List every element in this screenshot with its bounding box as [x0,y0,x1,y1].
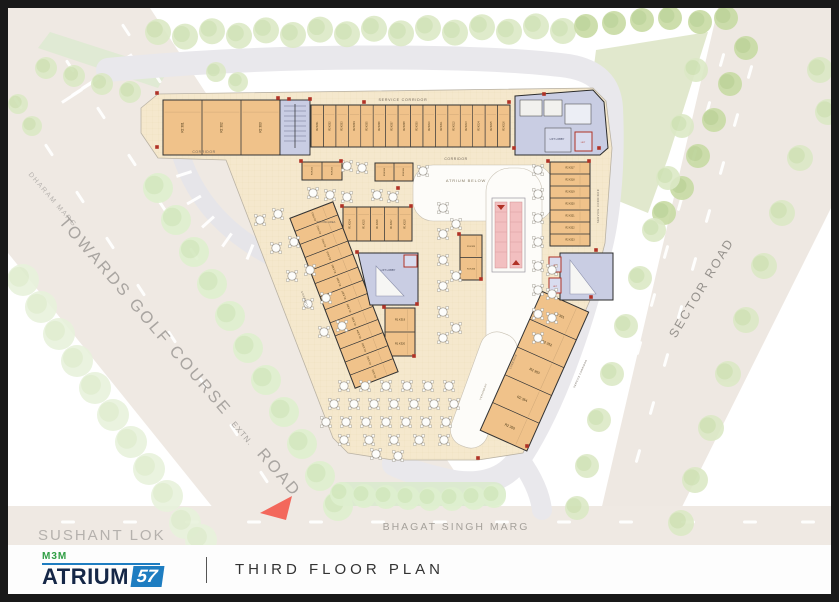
brand-logo: M3M ATRIUM 57 [42,552,174,588]
seating-table [357,163,368,174]
unit-label: R1 K322 [332,166,334,175]
tree [388,20,414,46]
tree [686,144,710,168]
seating-table [369,399,380,410]
unit-strip: R1 K321R1 K322 [302,162,342,180]
corner-marker [396,186,400,190]
seating-table [441,417,452,428]
seating-table [389,399,400,410]
tree [668,510,694,536]
tree [769,200,795,226]
tree [63,65,85,87]
tree [334,21,360,47]
tree [630,8,654,32]
corner-marker [589,295,593,299]
corner-marker [362,100,366,104]
seating-table [423,381,434,392]
tree [751,253,777,279]
tree [145,19,171,45]
road-dash [608,437,615,451]
unit-label: R1 K315 [363,219,365,229]
corner-marker [355,250,359,254]
site-plan-map: R2 301R2 302R2 303R2 K301R2 K302R2 K303R… [8,8,831,545]
tree [151,480,183,512]
tree [787,145,813,171]
seating-table [533,165,544,176]
tree [143,173,173,203]
seating-table [402,381,413,392]
unit-label: R2 K322 [566,228,576,230]
tree [670,114,694,138]
corner-marker [597,146,601,150]
seating-table [381,381,392,392]
label-lift-lobby-central: LIFT LOBBY [381,268,396,272]
unit-label: R1 K326 [467,268,476,270]
tree [43,318,75,350]
road-dash [61,521,75,524]
seating-table [429,399,440,410]
wc-room [520,100,542,116]
tree [718,72,742,96]
corner-marker [546,159,550,163]
tree [35,57,57,79]
seating-table [371,449,382,460]
unit-label: R2 K309 [416,121,418,131]
unit-label: R2 K303 [342,121,344,131]
seating-table [533,213,544,224]
seating-table [421,417,432,428]
corner-marker [507,100,511,104]
seating-table [438,307,449,318]
corner-marker [155,145,159,149]
unit-label: R1 K325 [467,246,476,248]
tree [656,166,680,190]
unit-label: R2 K321 [566,216,576,218]
tree [61,345,93,377]
unit-strip: R2 K301R2 K302R2 K303R2 K304R2 K305R2 K3… [311,105,510,147]
tree [374,485,398,509]
corner-marker [542,92,546,96]
tree [682,467,708,493]
corner-marker [287,97,291,101]
corner-marker [415,302,419,306]
corner-marker [409,204,413,208]
tree [600,362,624,386]
tree [280,22,306,48]
seating-table [438,255,449,266]
tree [251,365,281,395]
road-dash [123,521,137,524]
unit-label: R2 301 [180,122,184,133]
unit-label: R2 302 [219,122,223,133]
label-corridor-mid: CORRIDOR [444,157,467,161]
locality-label: SUSHANT LOK [38,527,166,544]
seating-table [372,190,383,201]
corner-marker [412,354,416,358]
tree [469,14,495,40]
seating-table [329,399,340,410]
brand-m3m: M3M [42,552,174,562]
seating-table [381,417,392,428]
label-waiting-area: WAITING AREA [317,220,336,224]
footer-divider [206,557,207,583]
unit-label: R2 K315 [491,121,493,131]
corner-marker [476,456,480,460]
label-service-corridor-top: SERVICE CORRIDOR [378,98,427,102]
unit-label: R1 K316 [377,219,379,229]
seating-table [533,237,544,248]
page-frame: R2 301R2 302R2 303R2 K301R2 K302R2 K303R… [0,0,839,602]
brand-name: ATRIUM [42,566,129,588]
unit-label: R2 K320 [566,204,576,206]
corner-marker [155,91,159,95]
tree [25,291,57,323]
label-atrium-below: ATRIUM BELOW [446,178,486,183]
unit-label: R2 K311 [441,121,443,130]
unit-label: R1 K321 [312,166,314,175]
unit-label: R2 K312 [454,121,456,131]
seating-table [438,281,449,292]
road-dash [619,521,633,524]
unit-strip: R1 K325R1 K326 [460,235,482,280]
unit-label: R2 K314 [479,121,481,131]
tree [715,361,741,387]
tree [614,314,638,338]
seating-table [547,289,558,300]
seating-table [255,215,266,226]
tree [197,269,227,299]
unit-label: R2 K302 [329,121,331,131]
seating-table [451,323,462,334]
corner-marker [525,444,529,448]
tree [396,486,420,510]
seating-table [533,333,544,344]
seating-table [533,285,544,296]
seating-table [409,399,420,410]
seating-table [438,229,449,240]
corner-marker [299,159,303,163]
seating-table [438,333,449,344]
seating-table [349,399,360,410]
unit-label: R2 K319 [566,192,576,194]
unit-label: R2 K307 [391,121,393,131]
tree [330,482,354,506]
tree [305,461,335,491]
tree [602,11,626,35]
unit-strip: R1 K323R1 K324 [375,163,413,181]
tree [226,23,252,49]
corner-marker [479,277,483,281]
seating-table [321,293,332,304]
tree [233,333,263,363]
seating-table [339,435,350,446]
seating-table [342,161,353,172]
seating-table [308,188,319,199]
seating-table [273,209,284,220]
tree [307,17,333,43]
seating-table [305,265,316,276]
label-corridor-left: CORRIDOR [192,150,215,154]
tree [133,453,165,485]
unit-label: R1 K318 [405,219,407,229]
seating-table [393,451,404,462]
tree [642,218,666,242]
unit-label: R2 K305 [367,121,369,131]
tree [361,16,387,42]
seating-table [451,271,462,282]
tree [418,487,442,511]
unit-label: R2 K323 [566,240,576,242]
seating-table [444,381,455,392]
tree [172,24,198,50]
tree [97,399,129,431]
tree [698,415,724,441]
tree [575,454,599,478]
seating-table [337,321,348,332]
wc-room [544,100,562,116]
tree [733,307,759,333]
road-dash [309,521,323,524]
tree [496,19,522,45]
footer-bar: M3M ATRIUM 57 THIRD FLOOR PLAN [8,545,831,594]
service-room [565,104,591,124]
unit-label: R1 K319 [395,318,406,322]
seating-table [341,417,352,428]
seating-table [418,166,429,177]
label-lift-service: LIFT [581,142,586,144]
seating-table [438,203,449,214]
corner-marker [457,232,461,236]
tree [199,18,225,44]
unit-label: R1 K324 [403,167,405,176]
seating-table [319,327,330,338]
road-label-bhagat-singh: BHAGAT SINGH MARG [383,521,530,533]
road-dash [743,521,757,524]
road-dash [594,485,601,499]
unit-label: R2 K318 [566,180,576,182]
tree [523,13,549,39]
unit-label: R1 K314 [350,219,352,229]
corner-marker [340,204,344,208]
seating-table [533,309,544,320]
tree [442,20,468,46]
unit-label: R2 K301 [317,121,319,131]
road-dash [801,521,815,524]
tree [440,487,464,511]
unit-strip: R2 301R2 302R2 303 [163,100,280,155]
corner-marker [308,97,312,101]
corner-marker [594,248,598,252]
seating-table [533,189,544,200]
seating-table [360,381,371,392]
unit-label: R2 K317 [566,168,576,170]
tree [119,81,141,103]
corner-marker [276,96,280,100]
road-dash [557,521,571,524]
tree [702,108,726,132]
unit-label: R1 K323 [384,167,386,176]
seating-table [388,192,399,203]
unit-label: R2 K316 [503,121,505,131]
unit-label: R2 303 [258,122,262,133]
label-service-corridor-right: SERVICE CORRIDOR [596,189,600,223]
tree [22,116,42,136]
tree [161,205,191,235]
seating-table [451,219,462,230]
seating-table [364,435,375,446]
unit-label: R2 K304 [354,121,356,131]
seating-table [533,261,544,272]
lift-central [404,255,417,267]
seating-table [342,192,353,203]
page-title: THIRD FLOOR PLAN [235,561,444,578]
brand-number-badge: 57 [130,566,164,587]
tree [215,301,245,331]
tree [415,15,441,41]
seating-table [271,243,282,254]
tree [628,266,652,290]
seating-table [287,271,298,282]
unit-label: R1 K320 [395,342,406,346]
unit-strip: R1 K314R1 K315R1 K316R1 K317R1 K318 [343,207,412,241]
unit-label: R1 K317 [391,219,393,229]
tree [269,397,299,427]
tree [688,10,712,34]
tree [79,372,111,404]
seating-table [439,435,450,446]
tree [91,73,113,95]
tree [658,8,682,30]
seating-table [449,399,460,410]
unit-label: R2 K306 [379,121,381,131]
seating-table [389,435,400,446]
corner-marker [339,159,343,163]
unit-label: R2 K310 [429,121,431,131]
tree [115,426,147,458]
corner-marker [587,159,591,163]
seating-table [289,237,300,248]
corner-marker [382,305,386,309]
escalators [492,198,525,272]
seating-table [325,190,336,201]
tree [8,94,28,114]
tree [179,237,209,267]
tree [587,408,611,432]
tree [8,264,39,296]
seating-table [339,381,350,392]
road-dash [247,521,261,524]
site-plan-svg: R2 301R2 302R2 303R2 K301R2 K302R2 K303R… [8,8,831,545]
seating-table [361,417,372,428]
unit-label: R2 K313 [466,121,468,131]
seating-table [401,417,412,428]
unit-label: R2 K308 [404,121,406,131]
unit-strip: R2 K317R2 K318R2 K319R2 K320R2 K321R2 K3… [550,162,590,246]
tree [550,18,576,44]
tree [565,496,589,520]
tree [228,72,248,92]
seating-table [414,435,425,446]
tree [734,36,758,60]
tree [482,484,506,508]
label-lift-lobby-top: LIFT LOBBY [550,137,565,141]
tree [352,484,376,508]
corner-marker [512,146,516,150]
tree [287,429,317,459]
seating-table [547,313,558,324]
tree [206,62,226,82]
tree [253,17,279,43]
tree [574,14,598,38]
seating-table [321,417,332,428]
tree [684,58,708,82]
